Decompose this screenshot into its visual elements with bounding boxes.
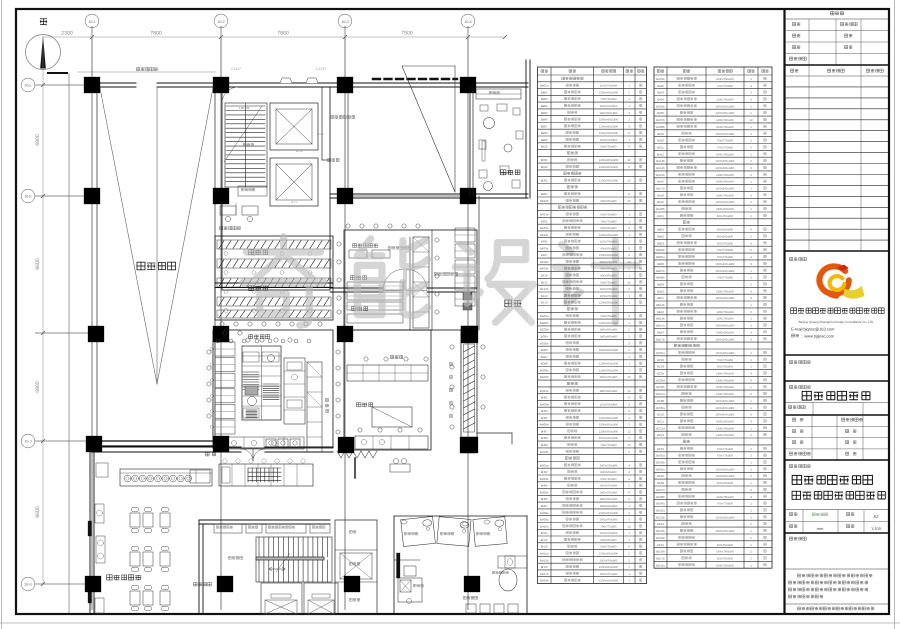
svg-text:1200x500x1800: 1200x500x1800	[715, 475, 735, 478]
svg-text:700x775x850: 700x775x850	[717, 249, 734, 252]
svg-text:1500x600x1800: 1500x600x1800	[599, 512, 619, 515]
svg-text:Beijing Qineng Shangchu Desig: Beijing Qineng Shangchu Design Consultan…	[799, 320, 875, 324]
svg-text:8600: 8600	[35, 506, 41, 518]
svg-text:2000x760x800: 2000x760x800	[600, 261, 618, 264]
svg-text:2000x760x800: 2000x760x800	[716, 153, 734, 156]
svg-text:BB03: BB03	[541, 97, 548, 101]
svg-text:1800x600x800: 1800x600x800	[600, 390, 618, 393]
svg-text:BC09a: BC09a	[656, 406, 665, 410]
svg-text:12: 12	[628, 429, 632, 433]
svg-text:BB08: BB08	[541, 131, 548, 135]
svg-text:BA10: BA10	[657, 139, 664, 143]
svg-text:2300: 2300	[61, 31, 73, 37]
svg-text:1500x600x1800: 1500x600x1800	[715, 105, 735, 108]
svg-text:BC05a: BC05a	[656, 378, 665, 382]
svg-text:BB03: BB03	[657, 241, 664, 245]
svg-text:BD01: BD01	[657, 447, 664, 451]
svg-text:12: 12	[628, 524, 632, 528]
svg-text:1500x600x1800: 1500x600x1800	[599, 166, 619, 169]
svg-text:6800: 6800	[35, 381, 41, 393]
svg-text:BD04a: BD04a	[656, 467, 665, 471]
svg-text:700x775x850: 700x775x850	[717, 85, 734, 88]
svg-text:BA04: BA04	[657, 98, 664, 102]
svg-text:BE02b: BE02b	[540, 199, 549, 203]
svg-text:BB04b: BB04b	[656, 248, 665, 252]
svg-text:BB07b: BB07b	[656, 269, 665, 273]
svg-text:8600: 8600	[35, 258, 41, 270]
svg-text:BB15a: BB15a	[656, 324, 665, 328]
svg-text:700x775x850: 700x775x850	[717, 448, 734, 451]
svg-text:700x775x850: 700x775x850	[717, 359, 734, 362]
svg-text:700x775x850: 700x775x850	[717, 503, 734, 506]
svg-text:1500x600x1800: 1500x600x1800	[599, 322, 619, 325]
svg-text:BA07b: BA07b	[656, 118, 665, 122]
svg-text:BD01: BD01	[541, 179, 548, 183]
svg-text:BF04b: BF04b	[540, 233, 549, 237]
svg-text:BH03b: BH03b	[540, 402, 549, 406]
svg-text:BA18: BA18	[657, 193, 664, 197]
svg-text:700x775x850: 700x775x850	[717, 146, 734, 149]
svg-text:2000x760x800: 2000x760x800	[600, 376, 618, 379]
svg-text:1800x600x800: 1800x600x800	[716, 421, 734, 424]
svg-text:600x750x800: 600x750x800	[600, 281, 617, 284]
svg-text:1500x600x1800: 1500x600x1800	[715, 297, 735, 300]
svg-text:600x750x800: 600x750x800	[600, 546, 617, 549]
svg-text:1800x600x800: 1800x600x800	[716, 208, 734, 211]
svg-text:900x500x800: 900x500x800	[600, 275, 617, 278]
svg-text:900x500x800: 900x500x800	[717, 482, 734, 485]
svg-text:1200x500x1800: 1200x500x1800	[715, 112, 735, 115]
svg-text:1500x600x1800: 1500x600x1800	[599, 119, 619, 122]
svg-text:BD08b: BD08b	[656, 495, 665, 499]
svg-text:BH05: BH05	[541, 416, 548, 420]
svg-text:BB01a: BB01a	[540, 84, 549, 88]
svg-text:1200x500x1800: 1200x500x1800	[715, 516, 735, 519]
svg-text:BA13b: BA13b	[656, 159, 665, 163]
svg-text:600x750x800: 600x750x800	[717, 215, 734, 218]
svg-text:600x750x800: 600x750x800	[717, 544, 734, 547]
svg-text:600x750x800: 600x750x800	[600, 214, 617, 217]
svg-text:BB17b: BB17b	[656, 337, 665, 341]
svg-text:10-3: 10-3	[341, 20, 348, 24]
svg-text:10-1: 10-1	[88, 20, 95, 24]
svg-text:BC08: BC08	[657, 399, 664, 403]
svg-text:BF06a: BF06a	[540, 246, 549, 250]
svg-text:BH01a: BH01a	[540, 389, 549, 393]
svg-text:1200x600x1800: 1200x600x1800	[715, 188, 735, 191]
svg-text:BF01b: BF01b	[540, 213, 549, 217]
svg-text:1400x760x800: 1400x760x800	[716, 551, 734, 554]
svg-text:2000x760x800: 2000x760x800	[716, 78, 734, 81]
svg-text:BA16: BA16	[657, 180, 664, 184]
svg-text:BH12: BH12	[541, 538, 548, 542]
svg-text:10-K: 10-K	[24, 195, 32, 199]
svg-text:1200x500x1800: 1200x500x1800	[715, 160, 735, 163]
svg-text:1400x760x800: 1400x760x800	[716, 290, 734, 293]
svg-text:900x500x800: 900x500x800	[600, 247, 617, 250]
svg-text:BD14b: BD14b	[656, 536, 665, 540]
svg-text:1200x500x1800: 1200x500x1800	[599, 430, 619, 433]
svg-text:1500x600x1800: 1500x600x1800	[715, 270, 735, 273]
svg-text:1200x600x1800: 1200x600x1800	[599, 363, 619, 366]
svg-text:12: 12	[628, 260, 632, 264]
svg-text:BB01: BB01	[657, 228, 664, 232]
svg-text:2000x760x800: 2000x760x800	[600, 559, 618, 562]
svg-text:1200x600x1800: 1200x600x1800	[599, 159, 619, 162]
svg-text:BA14b: BA14b	[656, 166, 665, 170]
svg-text:1500x600x1800: 1500x600x1800	[715, 263, 735, 266]
svg-text:BB14b: BB14b	[656, 317, 665, 321]
svg-text:1200x500x1800: 1200x500x1800	[715, 201, 735, 204]
svg-text:BB06: BB06	[657, 262, 664, 266]
svg-text:BF10: BF10	[541, 274, 548, 278]
svg-text:BH01a: BH01a	[540, 463, 549, 467]
svg-text:BH18b: BH18b	[540, 579, 549, 583]
svg-text:BH09a: BH09a	[540, 518, 549, 522]
svg-text:BA01b: BA01b	[656, 77, 665, 81]
svg-text:C1237: C1237	[316, 67, 326, 71]
svg-text:BB11: BB11	[657, 296, 664, 300]
svg-text:BB07: BB07	[541, 124, 548, 128]
svg-text:BF09b: BF09b	[540, 267, 549, 271]
svg-text:BD05: BD05	[657, 474, 664, 478]
svg-text:7500: 7500	[401, 31, 413, 37]
svg-text:BC01: BC01	[541, 158, 548, 162]
svg-text:BD09a: BD09a	[656, 502, 665, 506]
svg-text:1400x760x800: 1400x760x800	[716, 434, 734, 437]
svg-text:BH04: BH04	[541, 484, 548, 488]
svg-text:BH06b: BH06b	[540, 423, 549, 427]
svg-text:BC03: BC03	[657, 365, 664, 369]
svg-text:2000x760x800: 2000x760x800	[600, 519, 618, 522]
svg-text:600x750x800: 600x750x800	[717, 366, 734, 369]
svg-text:1100x760x800: 1100x760x800	[600, 139, 618, 142]
svg-text:1500x600x1800: 1500x600x1800	[599, 349, 619, 352]
svg-text:12: 12	[628, 443, 632, 447]
svg-text:10-G: 10-G	[24, 583, 32, 587]
svg-text:1200x500x1800: 1200x500x1800	[715, 468, 735, 471]
svg-text:900x500x800: 900x500x800	[600, 539, 617, 542]
svg-text:1100x760x800: 1100x760x800	[716, 99, 734, 102]
svg-text:600x750x800: 600x750x800	[717, 558, 734, 561]
svg-text:BF11: BF11	[541, 280, 548, 284]
svg-text:1200x500x1800: 1200x500x1800	[599, 180, 619, 183]
svg-text:12: 12	[628, 389, 632, 393]
svg-text:BG07: BG07	[541, 355, 549, 359]
svg-text:900x500x800: 900x500x800	[717, 236, 734, 239]
svg-text:1100x760x800: 1100x760x800	[716, 311, 734, 314]
svg-text:700x775x850: 700x775x850	[717, 455, 734, 458]
svg-text:BC02: BC02	[541, 165, 548, 169]
svg-text:700x775x850: 700x775x850	[600, 98, 617, 101]
svg-text:2000x760x800: 2000x760x800	[716, 564, 734, 567]
svg-text:BH15b: BH15b	[540, 558, 549, 562]
svg-text:BC01a: BC01a	[656, 351, 665, 355]
svg-text:BG01a: BG01a	[540, 314, 549, 318]
svg-text:BA17b: BA17b	[656, 187, 665, 191]
svg-text:1500x600x1800: 1500x600x1800	[599, 437, 619, 440]
svg-text:BB04: BB04	[541, 104, 548, 108]
svg-text:BH02: BH02	[541, 396, 548, 400]
svg-text:BA08b: BA08b	[656, 125, 665, 129]
svg-text:700x775x850: 700x775x850	[600, 220, 617, 223]
svg-text:700x775x850: 700x775x850	[717, 277, 734, 280]
svg-text:BA15b: BA15b	[656, 173, 665, 177]
svg-text:BC06b: BC06b	[656, 385, 665, 389]
svg-text:BD16b: BD16b	[656, 550, 665, 554]
svg-text:BG09a: BG09a	[540, 368, 549, 372]
svg-text:700x775x850: 700x775x850	[717, 140, 734, 143]
svg-text:BH07: BH07	[541, 429, 548, 433]
svg-text:BC13: BC13	[657, 433, 664, 437]
svg-text:1500x600x1800: 1500x600x1800	[599, 417, 619, 420]
svg-text:1400x760x800: 1400x760x800	[716, 427, 734, 430]
svg-text:1400x760x800: 1400x760x800	[716, 194, 734, 197]
svg-text:BB10: BB10	[657, 289, 664, 293]
svg-text:E-mail:bjqnsc@163.com: E-mail:bjqnsc@163.com	[791, 327, 835, 332]
svg-text:BB02: BB02	[541, 90, 548, 94]
svg-text:600x750x800: 600x750x800	[600, 478, 617, 481]
svg-text:900x500x800: 900x500x800	[600, 200, 617, 203]
svg-text:BA21: BA21	[657, 214, 664, 218]
svg-text:1800x600x800: 1800x600x800	[600, 505, 618, 508]
svg-text:BG08: BG08	[541, 362, 549, 366]
svg-text:1800x600x800: 1800x600x800	[600, 336, 618, 339]
svg-text:BB13: BB13	[657, 310, 664, 314]
svg-text:BG06: BG06	[541, 348, 549, 352]
svg-text:: www.bjqnsc.com: : www.bjqnsc.com	[802, 334, 835, 339]
svg-text:10-2: 10-2	[217, 20, 224, 24]
svg-text:1500x600x1800: 1500x600x1800	[715, 414, 735, 417]
svg-text:6800: 6800	[35, 134, 41, 146]
svg-text:12: 12	[628, 280, 632, 284]
svg-text:1200x500x1800: 1200x500x1800	[715, 530, 735, 533]
svg-text:1200x500x1800: 1200x500x1800	[599, 132, 619, 135]
svg-text:10-L: 10-L	[24, 84, 31, 88]
svg-text:2000x760x800: 2000x760x800	[600, 464, 618, 467]
svg-text:BH03b: BH03b	[540, 477, 549, 481]
svg-text:BD15: BD15	[657, 543, 664, 547]
svg-text:BD03b: BD03b	[656, 461, 665, 465]
svg-text:1500x600x1800: 1500x600x1800	[599, 424, 619, 427]
svg-text:BA03: BA03	[657, 91, 664, 95]
svg-text:BF14: BF14	[541, 301, 548, 305]
svg-text:BC07a: BC07a	[656, 392, 665, 396]
svg-text:1800x600x800: 1800x600x800	[716, 181, 734, 184]
svg-text:BC11: BC11	[657, 420, 664, 424]
svg-text:BF13: BF13	[541, 294, 548, 298]
svg-text:2000x760x800: 2000x760x800	[716, 126, 734, 129]
svg-text:7800: 7800	[277, 31, 289, 37]
svg-text:1200x600x1800: 1200x600x1800	[715, 407, 735, 410]
svg-text:1500x600x1800: 1500x600x1800	[715, 325, 735, 328]
svg-text:BF07: BF07	[541, 253, 548, 257]
svg-text:BA02: BA02	[657, 84, 664, 88]
svg-text:BH05b: BH05b	[540, 491, 549, 495]
svg-text:BH14a: BH14a	[540, 552, 549, 556]
svg-text:12: 12	[628, 375, 632, 379]
svg-text:BD02a: BD02a	[656, 454, 665, 458]
svg-text:1800x600x800: 1800x600x800	[600, 112, 618, 115]
svg-text:1200x600x1800: 1200x600x1800	[599, 234, 619, 237]
svg-text:7800: 7800	[150, 31, 162, 37]
svg-text:1100x760x800: 1100x760x800	[600, 403, 618, 406]
svg-text:1200x500x1800: 1200x500x1800	[715, 338, 735, 341]
svg-text:BH02: BH02	[541, 470, 548, 474]
svg-text:2000x760x800: 2000x760x800	[600, 485, 618, 488]
svg-text:BA05b: BA05b	[656, 104, 665, 108]
svg-text:BB05a: BB05a	[656, 255, 665, 259]
svg-text:900x500x800: 900x500x800	[717, 229, 734, 232]
svg-text:1200x600x1800: 1200x600x1800	[599, 553, 619, 556]
svg-text:1:100: 1:100	[871, 526, 882, 531]
svg-text:600x750x800: 600x750x800	[717, 242, 734, 245]
svg-text:BA09: BA09	[657, 132, 664, 136]
svg-text:700x775x850: 700x775x850	[600, 525, 617, 528]
svg-text:1200x500x1800: 1200x500x1800	[715, 133, 735, 136]
svg-text:BH17b: BH17b	[540, 572, 549, 576]
svg-text:BH10b: BH10b	[540, 450, 549, 454]
svg-text:BD06: BD06	[657, 481, 664, 485]
svg-text:12: 12	[749, 118, 753, 122]
svg-text:BH04: BH04	[541, 409, 548, 413]
svg-text:1100x760x800: 1100x760x800	[600, 105, 618, 108]
svg-text:BH10a: BH10a	[540, 524, 549, 528]
svg-text:1400x760x800: 1400x760x800	[716, 379, 734, 382]
svg-text:BB12b: BB12b	[656, 303, 665, 307]
svg-text:1100x760x800: 1100x760x800	[600, 85, 618, 88]
svg-text:BB09: BB09	[657, 283, 664, 287]
svg-text:BH09: BH09	[541, 443, 548, 447]
svg-text:1400x760x800: 1400x760x800	[716, 119, 734, 122]
svg-text:12: 12	[628, 179, 632, 183]
svg-text:10-4: 10-4	[464, 20, 471, 24]
svg-text:1200x600x1800: 1200x600x1800	[599, 125, 619, 128]
svg-text:1100x760x800: 1100x760x800	[716, 318, 734, 321]
svg-text:1400x760x800: 1400x760x800	[716, 174, 734, 177]
svg-text:1400x760x800: 1400x760x800	[716, 373, 734, 376]
svg-text:BF05: BF05	[541, 240, 548, 244]
svg-text:2000x760x800: 2000x760x800	[600, 573, 618, 576]
svg-text:10-J: 10-J	[25, 440, 32, 444]
svg-text:A2: A2	[873, 514, 879, 519]
svg-text:1100x760x800: 1100x760x800	[600, 532, 618, 535]
svg-text:2000x760x800: 2000x760x800	[600, 295, 618, 298]
svg-text:BH13: BH13	[541, 545, 548, 549]
svg-text:BF03a: BF03a	[540, 226, 549, 230]
svg-text:BE01: BE01	[541, 192, 548, 196]
svg-text:BF08a: BF08a	[540, 260, 549, 264]
svg-text:900x500x800: 900x500x800	[600, 268, 617, 271]
svg-text:1500x600x1800: 1500x600x1800	[599, 254, 619, 257]
svg-text:BD11b: BD11b	[656, 515, 665, 519]
svg-text:BG10b: BG10b	[540, 375, 549, 379]
svg-text:BC12a: BC12a	[656, 426, 665, 430]
svg-text:BB09: BB09	[541, 138, 548, 142]
svg-text:2000x760x800: 2000x760x800	[716, 386, 734, 389]
svg-text:BD17b: BD17b	[656, 557, 665, 561]
svg-text:BA19: BA19	[657, 200, 664, 204]
svg-text:1FT1: 1FT1	[291, 201, 298, 204]
svg-text:BC02: BC02	[657, 358, 664, 362]
svg-text:12: 12	[628, 158, 632, 162]
svg-text:BC10: BC10	[657, 413, 664, 417]
svg-text:1100x760x800: 1100x760x800	[716, 496, 734, 499]
svg-text:1400x760x800: 1400x760x800	[600, 492, 618, 495]
svg-text:BB08b: BB08b	[656, 276, 665, 280]
svg-text:1200x600x1800: 1200x600x1800	[715, 352, 735, 355]
svg-text:BD12: BD12	[657, 522, 664, 526]
svg-text:BA12: BA12	[657, 152, 664, 156]
svg-text:BB02: BB02	[657, 235, 664, 239]
svg-text:1100x760x800: 1100x760x800	[600, 241, 618, 244]
svg-text:BB10: BB10	[541, 145, 548, 149]
svg-text:1200x500x1800: 1200x500x1800	[599, 369, 619, 372]
svg-text:BF12b: BF12b	[540, 287, 549, 291]
svg-text:C1237: C1237	[231, 67, 241, 71]
svg-text:1400x760x800: 1400x760x800	[716, 393, 734, 396]
svg-text:BB06: BB06	[541, 118, 548, 122]
svg-text:BH08a: BH08a	[540, 511, 549, 515]
svg-text:900x500x800: 900x500x800	[600, 227, 617, 230]
svg-text:1200x500x1800: 1200x500x1800	[599, 302, 619, 305]
svg-text:mm: mm	[817, 526, 824, 531]
svg-text:BD10a: BD10a	[656, 509, 665, 513]
svg-text:BG03b: BG03b	[540, 328, 549, 332]
svg-text:BG05b: BG05b	[540, 341, 549, 345]
svg-text:1200x500x1800: 1200x500x1800	[715, 400, 735, 403]
svg-text:BA06: BA06	[657, 111, 664, 115]
svg-text:700x775x850: 700x775x850	[717, 256, 734, 259]
svg-text:600x750x800: 600x750x800	[600, 146, 617, 149]
svg-text:1FT1: 1FT1	[296, 149, 303, 153]
svg-text:BC04: BC04	[657, 372, 664, 376]
svg-text:700x775x850: 700x775x850	[600, 315, 617, 318]
svg-text:12: 12	[628, 199, 632, 203]
svg-text:1200x600x1800: 1200x600x1800	[715, 167, 735, 170]
svg-text:1800x600x800: 1800x600x800	[600, 498, 618, 501]
svg-text:BH11: BH11	[541, 531, 548, 535]
svg-text:1500x600x1800: 1500x600x1800	[599, 91, 619, 94]
svg-text:BH06: BH06	[541, 497, 548, 501]
svg-text:BF02: BF02	[541, 219, 548, 223]
svg-text:FM1230: FM1230	[239, 106, 250, 110]
svg-text:1100x760x800: 1100x760x800	[600, 288, 618, 291]
svg-text:BD13b: BD13b	[656, 529, 665, 533]
svg-text:1800x600x800: 1800x600x800	[716, 331, 734, 334]
svg-text:1500x600x1800: 1500x600x1800	[599, 566, 619, 569]
svg-text:BB16: BB16	[657, 330, 664, 334]
svg-text:BA11: BA11	[657, 145, 664, 149]
svg-text:BB05: BB05	[541, 111, 548, 115]
svg-text:BG02b: BG02b	[540, 321, 549, 325]
svg-text:BH16: BH16	[541, 565, 548, 569]
svg-text:1200x600x1800: 1200x600x1800	[599, 580, 619, 583]
svg-text:BH08: BH08	[541, 436, 548, 440]
svg-text:BD18a: BD18a	[656, 563, 665, 567]
svg-text:900x500x800: 900x500x800	[600, 471, 617, 474]
svg-text:BG04: BG04	[541, 335, 549, 339]
svg-text:BD07b: BD07b	[656, 488, 665, 492]
svg-text:700x775x850: 700x775x850	[600, 444, 617, 447]
svg-text:1800x600x800: 1800x600x800	[600, 329, 618, 332]
svg-text:BA20b: BA20b	[656, 207, 665, 211]
svg-text:BH07: BH07	[541, 504, 548, 508]
